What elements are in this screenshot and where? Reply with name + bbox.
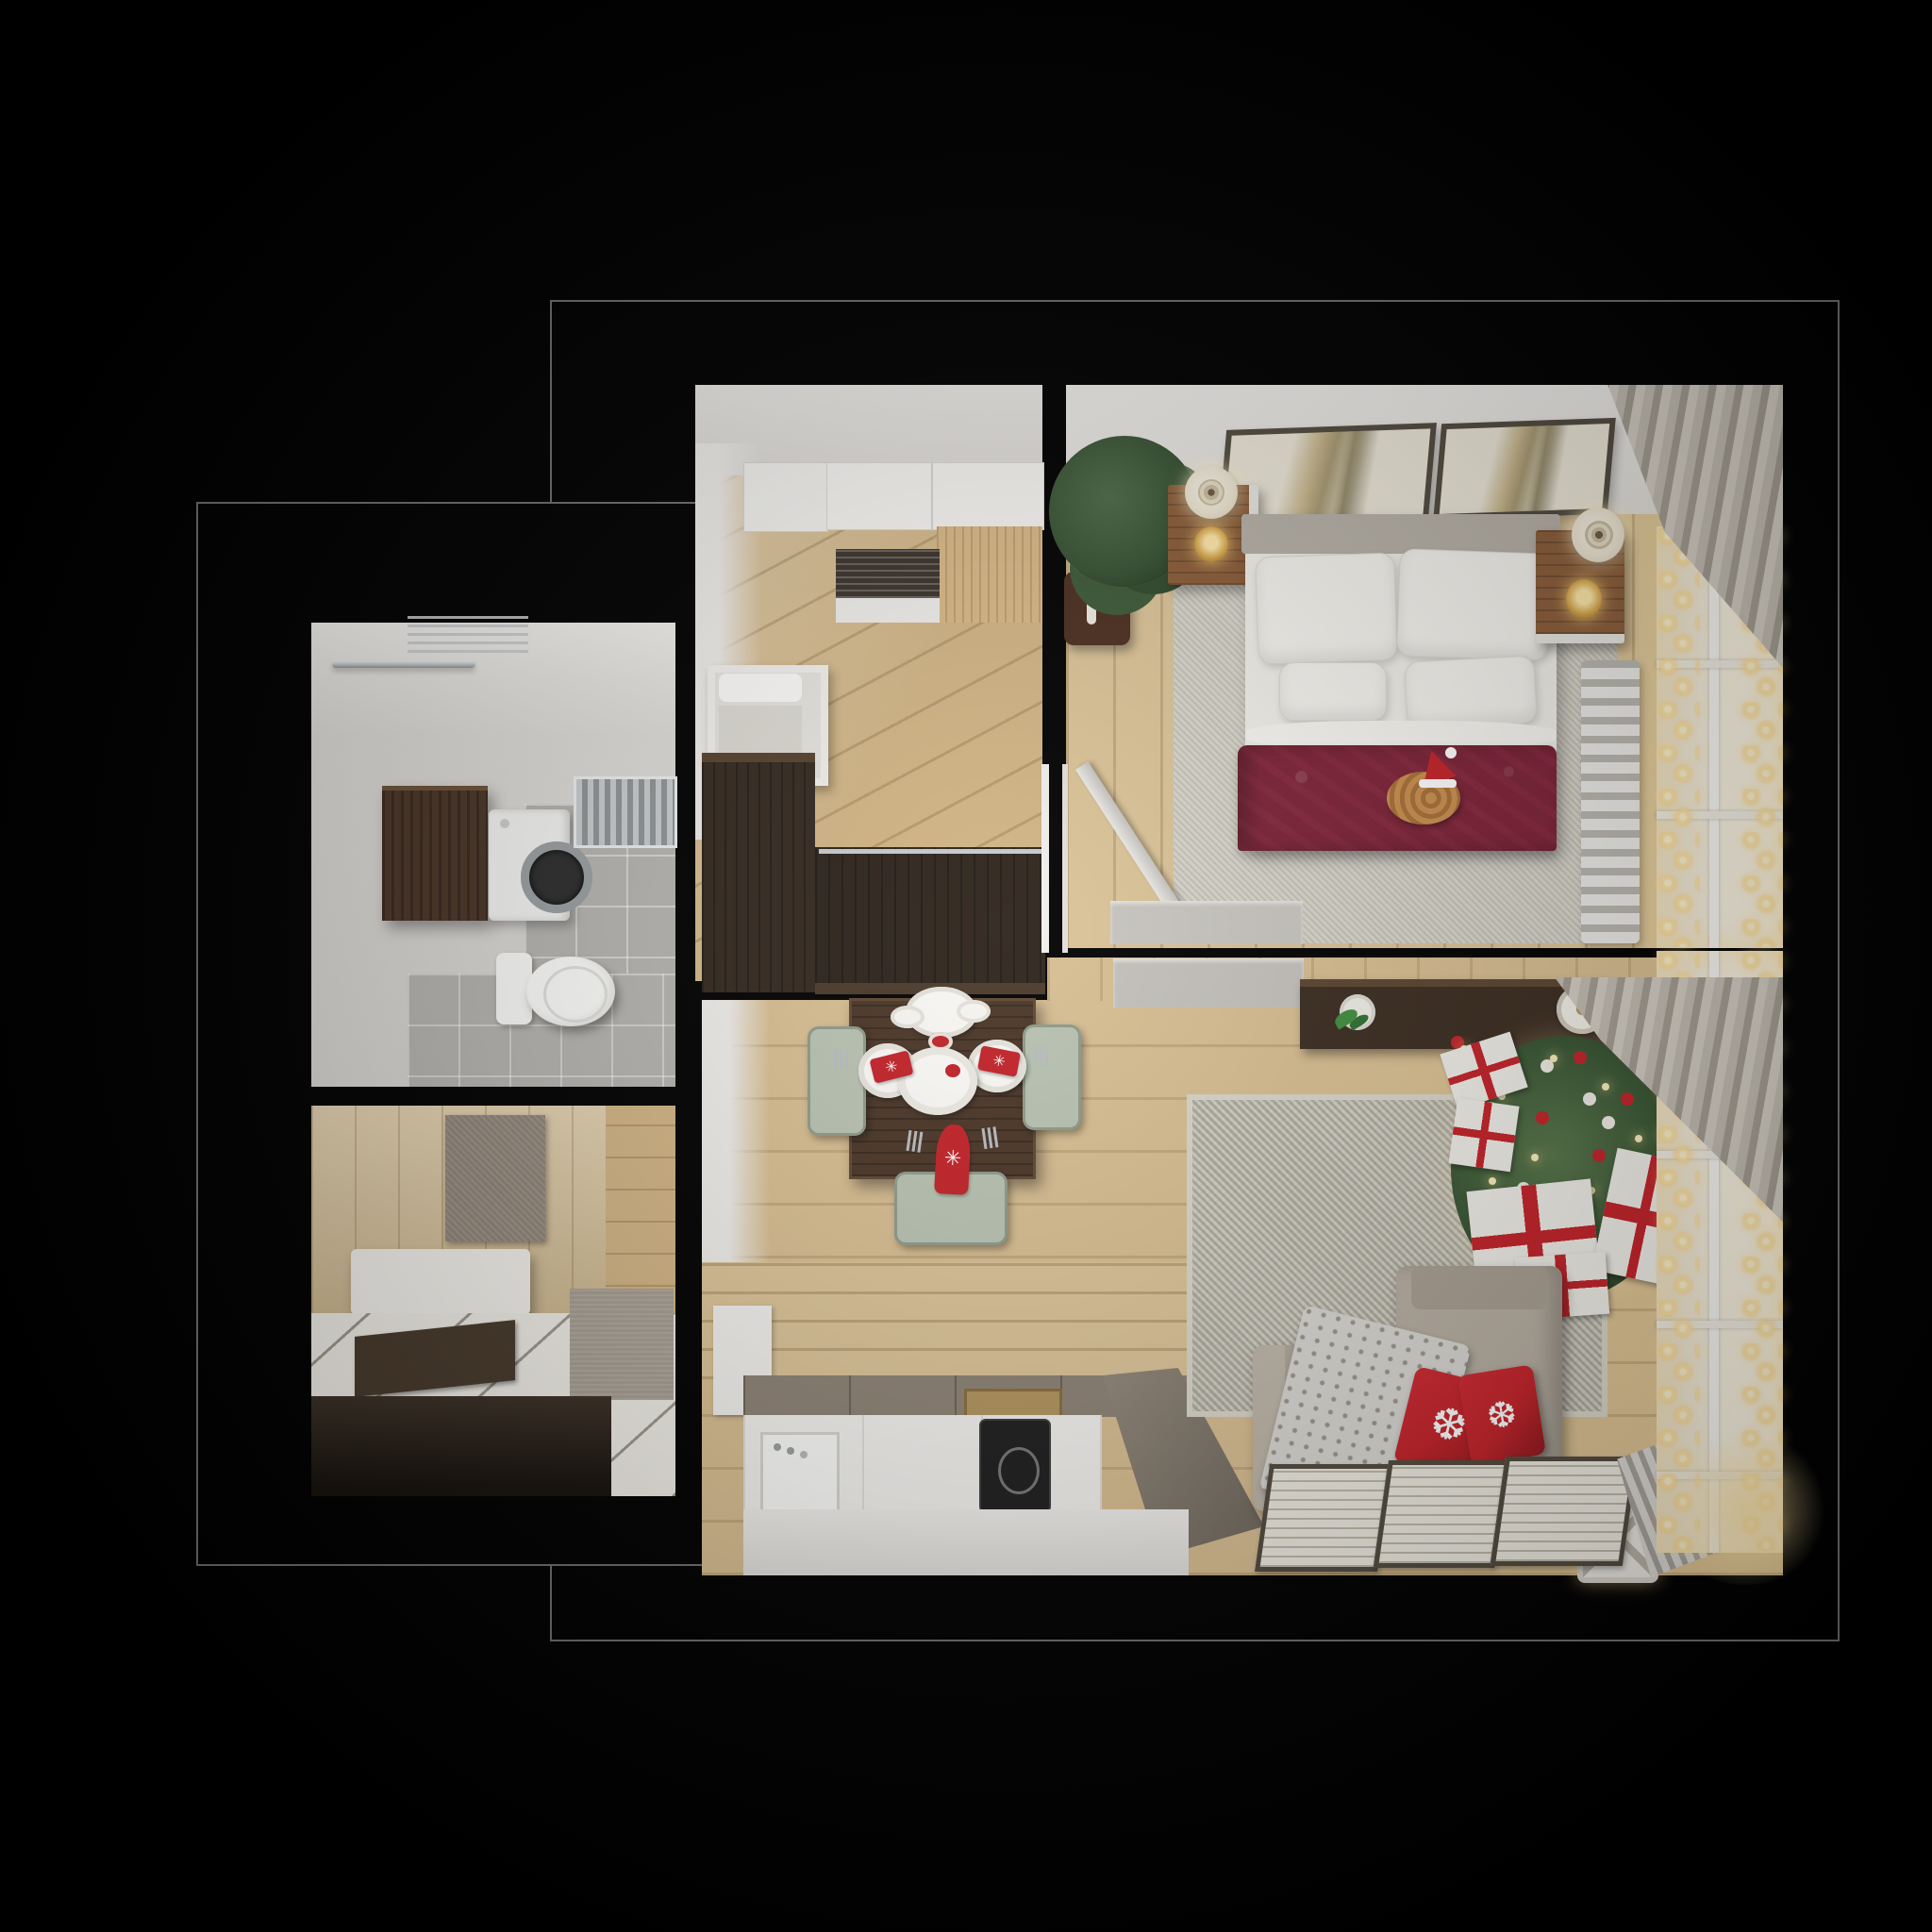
headboard — [1241, 514, 1560, 554]
kitchen-sink — [760, 1432, 840, 1517]
dark-cabinet-low — [815, 847, 1045, 994]
cutlery — [1034, 1045, 1037, 1066]
hallway-bench — [351, 1249, 530, 1315]
snowflake-icon: ✳ — [991, 1053, 1007, 1070]
floor-picture-frame — [1255, 1464, 1392, 1572]
closet-wood-panel — [937, 526, 1042, 623]
cooktop-burner — [998, 1447, 1040, 1494]
pillow — [1404, 655, 1538, 729]
sink-faucet — [774, 1443, 781, 1451]
pillow — [1396, 548, 1551, 661]
washing-machine-control — [500, 819, 509, 828]
kitchen-backsplash-wall — [702, 1262, 1236, 1379]
small-plate — [957, 1000, 991, 1023]
gift-box — [1448, 1098, 1519, 1173]
light-glow — [1660, 1434, 1830, 1585]
kitchen-counter-front — [743, 1509, 1189, 1575]
shower-grate — [574, 776, 677, 848]
hallway-door-mat — [311, 1396, 611, 1496]
hallway-wall-rug — [445, 1115, 545, 1241]
bedroom-door-frame — [1062, 764, 1068, 953]
toilet-seat — [543, 966, 608, 1023]
closet-base — [836, 598, 940, 623]
dark-cabinet-tall — [702, 753, 815, 992]
dining-chair — [808, 1026, 866, 1136]
towel-bar — [332, 660, 475, 668]
pillow — [1279, 662, 1387, 721]
cabinet-chrome-rail — [819, 849, 1041, 854]
red-snowflake-pillow: ❆ — [1457, 1364, 1546, 1465]
santa-hat-pompom — [1445, 747, 1457, 758]
bedside-lamp-shade — [1585, 521, 1613, 549]
washing-machine-door — [521, 841, 592, 913]
candle — [1194, 526, 1228, 562]
crib-pillow — [719, 674, 802, 702]
hallway-floor-mat — [570, 1289, 674, 1400]
closet-doors — [826, 462, 1044, 530]
radiator — [1581, 660, 1640, 943]
bedroom-door-frame — [1041, 764, 1049, 953]
cutlery — [834, 1049, 837, 1070]
snowflake-icon: ✳ — [943, 1149, 962, 1171]
small-plate — [891, 1006, 924, 1028]
closet-vent-panel — [836, 549, 940, 598]
closet-door — [743, 462, 828, 532]
santa-hat-band — [1419, 779, 1457, 788]
serving-platter — [898, 1047, 977, 1115]
sofa-headrest — [1411, 1266, 1547, 1309]
pillow — [1255, 552, 1398, 664]
framed-picture — [1433, 418, 1616, 520]
dining-chair — [1023, 1024, 1081, 1130]
doorway-threshold — [1113, 958, 1304, 1008]
hallway-wood-paneling — [606, 1106, 675, 1319]
candle — [1566, 579, 1602, 619]
bedside-lamp-shade — [1198, 479, 1224, 506]
snowflake-icon: ✳ — [884, 1058, 900, 1076]
red-ornament — [945, 1064, 960, 1077]
floor-picture-frame — [1374, 1460, 1509, 1568]
bathroom-vanity-cabinet — [382, 786, 488, 921]
ceiling-drying-rack — [408, 615, 528, 658]
doorway-threshold — [1110, 901, 1303, 944]
red-napkin: ✳ — [934, 1124, 972, 1195]
snowflake-icon: ❆ — [1484, 1392, 1520, 1438]
apartment-floorplan-render: ✳ ✳ ✳ ❆ ❆ — [0, 0, 1932, 1932]
plant-pot-handle — [1087, 600, 1096, 625]
floor-picture-frame — [1491, 1457, 1638, 1566]
string-lights — [1658, 528, 1700, 947]
